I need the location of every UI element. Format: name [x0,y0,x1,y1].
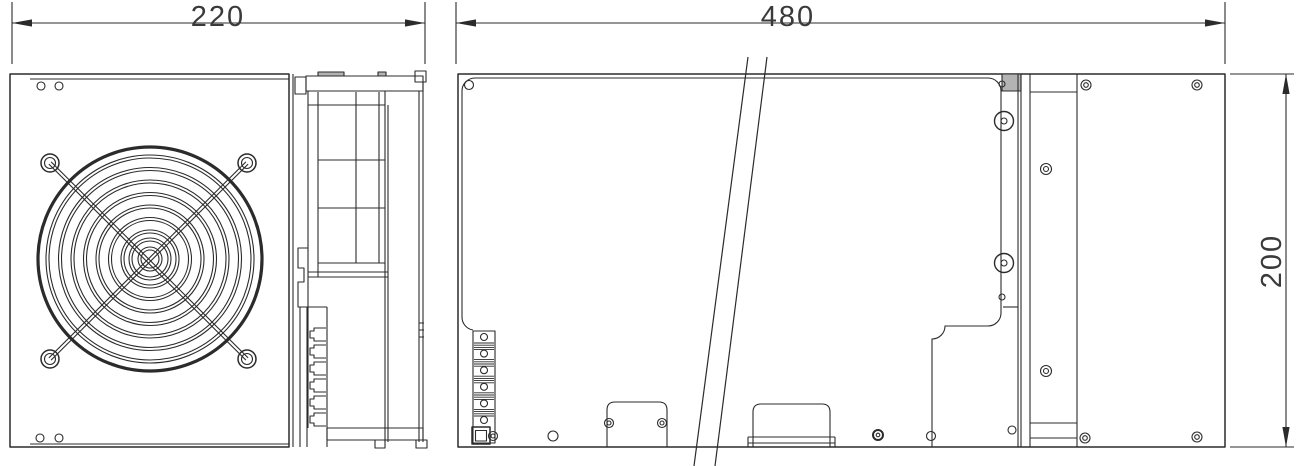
arrowhead-left-icon [12,19,32,26]
terminal-strip [473,331,495,443]
arrowhead-right-icon [1205,19,1225,26]
edge-screw [927,432,936,441]
foot [375,440,385,448]
drawing-svg [0,0,1297,466]
hinge-strip [995,74,1022,447]
foot [416,440,427,448]
end-screws [1008,80,1202,443]
fan-guard-outer-ring [38,147,262,371]
arrowhead-down-icon [1282,427,1289,447]
step-bracket [298,248,308,307]
front-view [10,71,427,448]
screw [873,430,883,440]
top-tab [318,72,344,76]
dimension-200-label: 200 [1256,221,1288,301]
component-stack [295,71,426,442]
inner-cover-plate [462,78,1001,447]
terminal-block [300,307,327,447]
shoulder-screw [995,112,1014,131]
bracket [295,77,306,94]
screw [1041,366,1052,377]
hole [1008,426,1016,434]
arrowhead-left-icon [456,19,476,26]
foot-bracket [753,404,830,447]
side-view [458,57,1225,466]
arrowhead-up-icon [1282,74,1289,94]
right-rail [419,82,423,442]
drawing-canvas: 220 480 200 [0,0,1297,466]
fan-guard [38,147,262,371]
top-bar [306,76,423,91]
dimension-220-label: 220 [178,1,258,33]
side-panel [458,74,1225,447]
power-switch [472,427,498,444]
bottom-hole [548,431,558,441]
shoulder-screw [995,254,1014,273]
bottom-rail [327,428,427,448]
top-tab [378,72,386,76]
fan-guard-wire-rings [46,155,254,363]
dimension-480 [456,2,1225,64]
arrowhead-right-icon [405,19,425,26]
bracket-column [1030,74,1077,447]
dimension-480-label: 480 [748,1,828,33]
screw [1041,164,1052,175]
